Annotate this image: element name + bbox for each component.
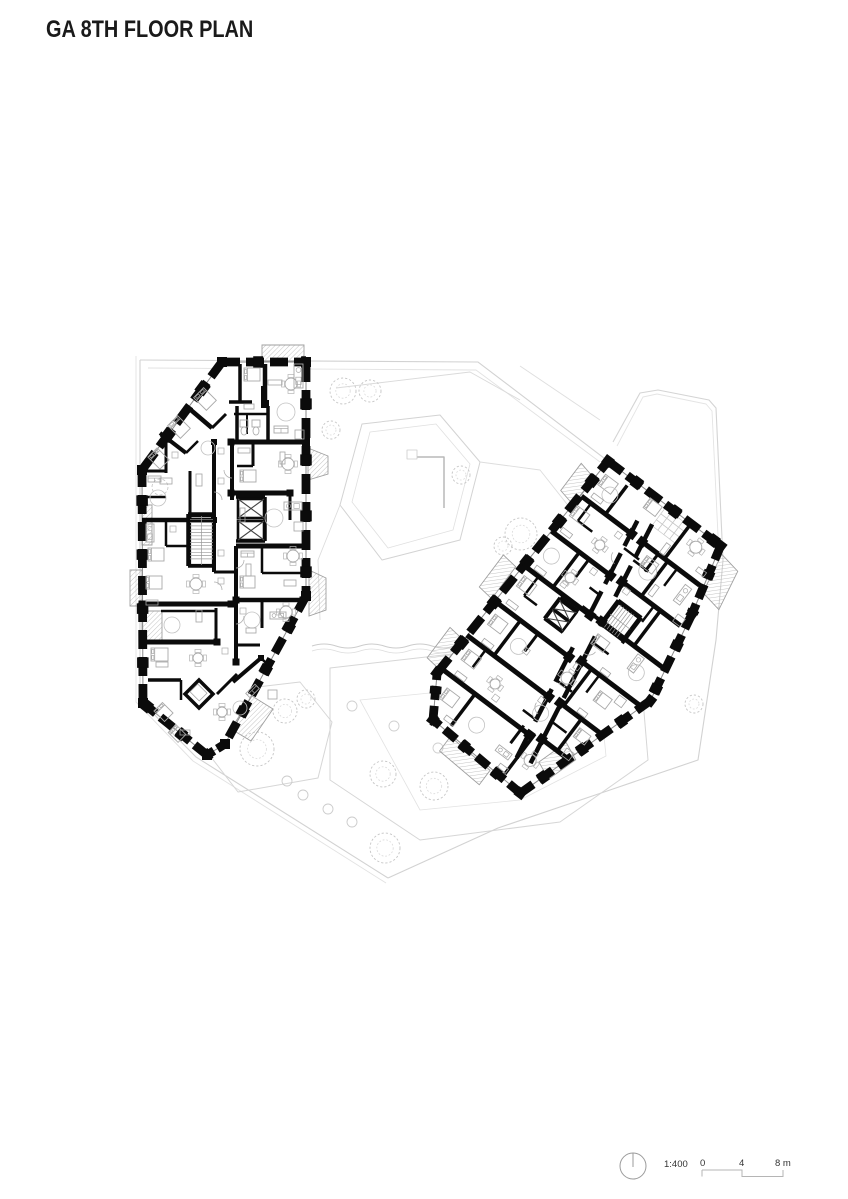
svg-text:1:400: 1:400 xyxy=(664,1159,688,1170)
svg-text:8 m: 8 m xyxy=(775,1158,791,1169)
svg-text:0: 0 xyxy=(700,1158,705,1169)
svg-text:4: 4 xyxy=(739,1158,744,1169)
